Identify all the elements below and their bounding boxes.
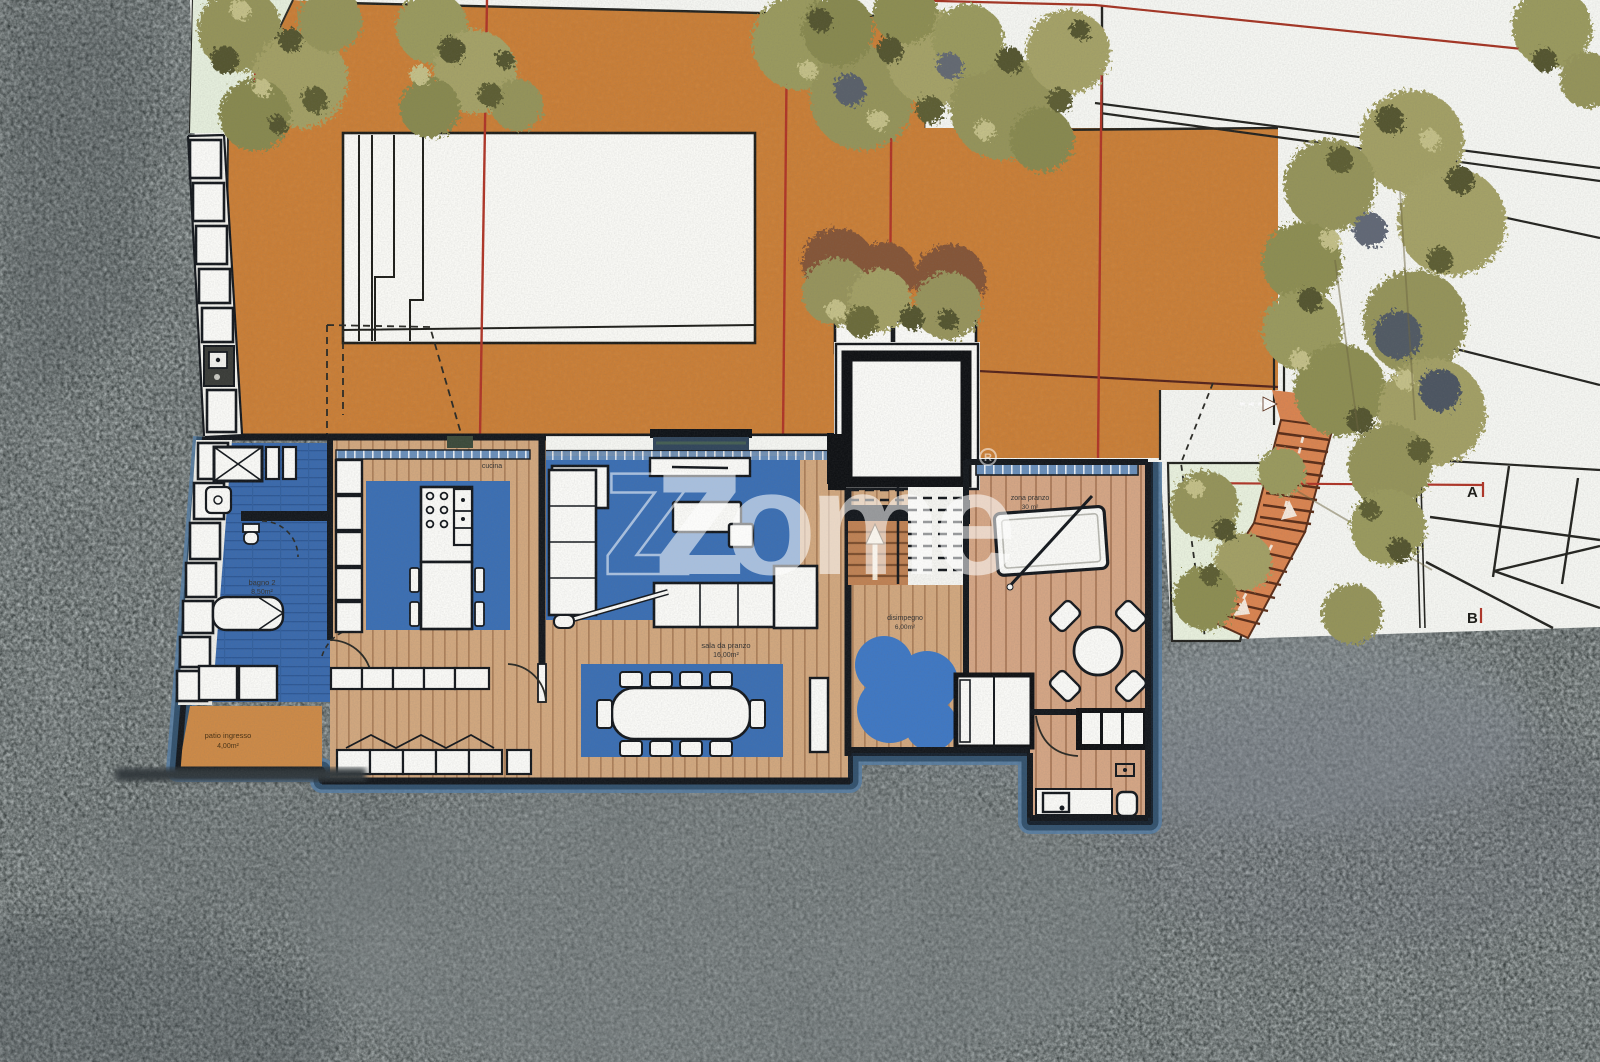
svg-text:ome: ome (726, 441, 1012, 606)
svg-text:R: R (984, 452, 992, 464)
